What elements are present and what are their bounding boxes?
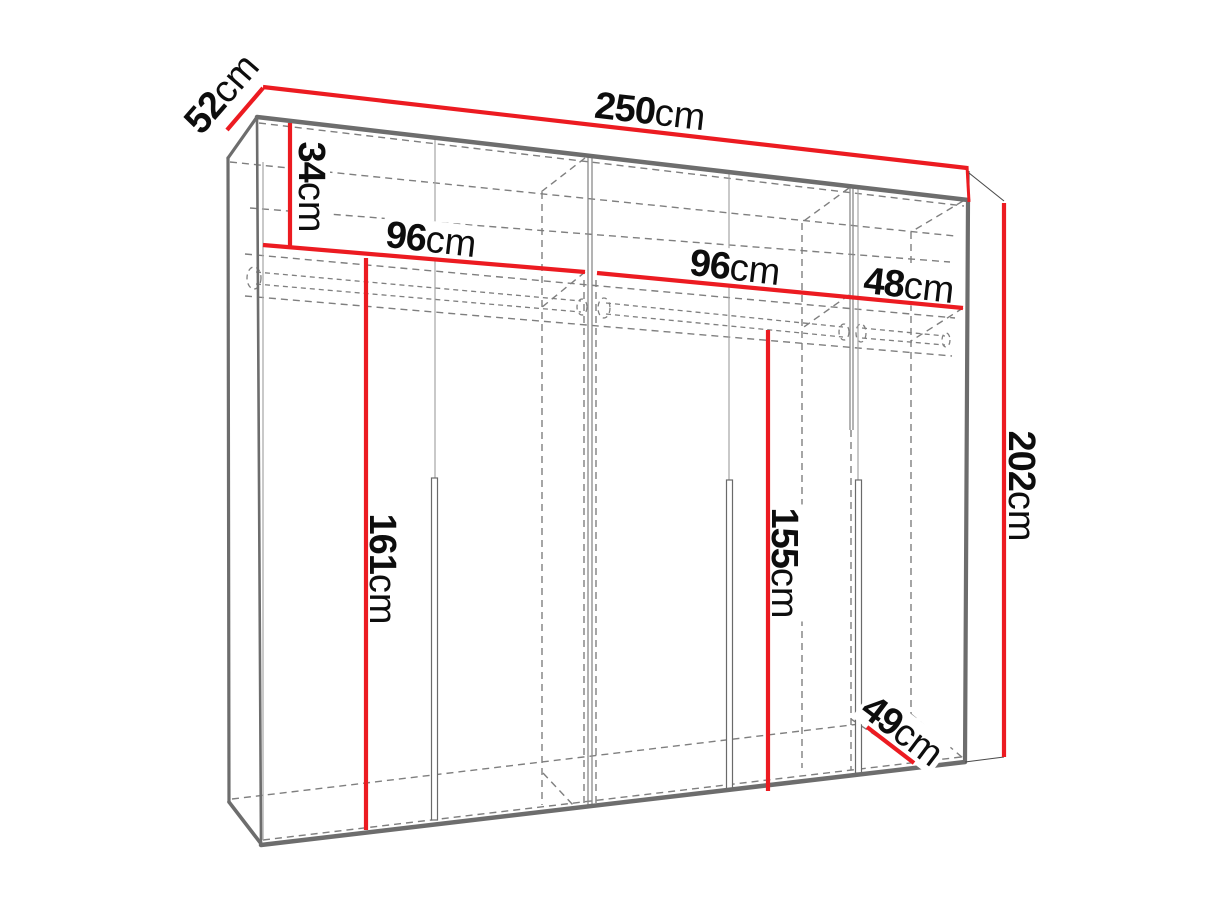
rail-3-top (862, 328, 945, 336)
shelf-underside-edge (245, 254, 955, 318)
dimension-unit: cm (361, 574, 403, 625)
rail-3-bottom (862, 338, 945, 345)
rail-2-left-end (598, 298, 610, 318)
divider-1-top-depth-diagonal (541, 158, 585, 192)
dimension-label-right-section-width: 48cm (859, 262, 960, 311)
wardrobe-dimension-diagram: 52cm 250cm 34cm 96cm 96cm 48cm 161cm 155… (0, 0, 1214, 911)
rail-1-right-end (577, 299, 587, 315)
dimension-unit: cm (763, 568, 805, 619)
hanging-rails-group (247, 267, 950, 347)
rail-1-top (256, 272, 581, 301)
bottom-left-depth-edge (229, 802, 262, 845)
divider-1-floor-depth-diagonal (543, 773, 574, 806)
dimension-label-left-section-width: 96cm (381, 216, 482, 265)
dimension-value: 161 (361, 513, 403, 573)
dimension-value: 202 (1000, 430, 1042, 490)
door-handle-middle (727, 480, 733, 790)
dimension-label-right-hanging-height: 155cm (765, 504, 803, 621)
dimension-label-top-compartment-height: 34cm (292, 139, 330, 236)
dimension-label-middle-section-width: 96cm (685, 244, 786, 293)
dimension-unit: cm (423, 219, 478, 267)
top-left-depth-edge (228, 117, 257, 158)
shelf-back-edge (250, 208, 950, 262)
dimension-value: 34 (290, 142, 332, 182)
dimension-unit: cm (652, 92, 707, 140)
dimension-label-total-height: 202cm (1002, 427, 1040, 544)
top-front-edge (257, 117, 968, 200)
back-left-edge (228, 158, 229, 802)
bottom-back-right-edge (965, 757, 1004, 762)
divider-1-shelf-depth-diagonal (541, 272, 585, 308)
dimension-value: 48 (861, 260, 906, 306)
dimension-value: 250 (592, 85, 657, 134)
dimension-value: 96 (687, 242, 732, 288)
dimension-value: 155 (763, 507, 805, 567)
dimension-unit: cm (290, 182, 332, 233)
right-panel-shelf-depth-diagonal (911, 308, 963, 341)
door-handle-left (432, 478, 438, 820)
front-left-edge (257, 117, 261, 845)
top-back-right-edge (969, 173, 1004, 201)
floor-back-edge (232, 723, 868, 799)
hidden-edges-group (230, 123, 964, 840)
rail-2-top (606, 303, 843, 327)
dimension-unit: cm (1000, 491, 1042, 542)
front-right-edge (965, 200, 968, 762)
divider-2-top-depth-diagonal (801, 188, 849, 223)
back-right-caps-group (965, 171, 1004, 762)
rail-1-bottom (256, 284, 581, 312)
rail-2-bottom (606, 314, 843, 337)
dimension-label-left-hanging-height: 161cm (363, 510, 401, 627)
rail-3-right-end (942, 333, 950, 347)
dimension-unit: cm (727, 247, 782, 295)
dimension-unit: cm (901, 265, 956, 313)
divider-2-shelf-depth-diagonal (801, 295, 849, 329)
dimension-value: 96 (383, 214, 428, 260)
bottom-front-edge (261, 762, 965, 845)
door-handle-right (856, 480, 862, 773)
